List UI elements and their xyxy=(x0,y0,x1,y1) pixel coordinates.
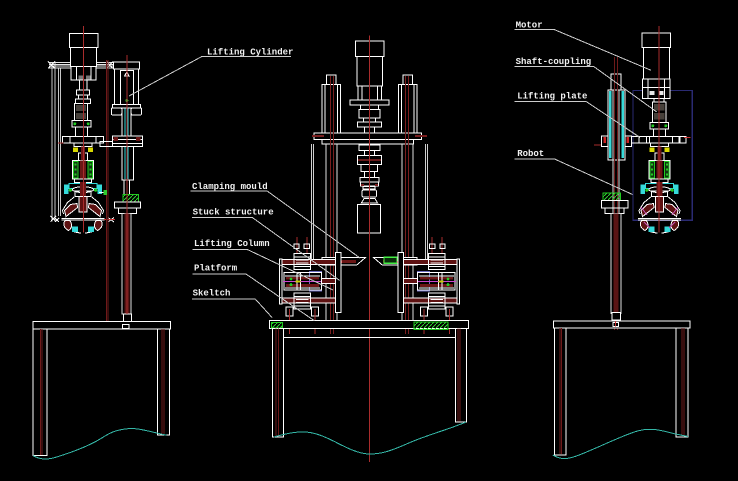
svg-text:Lifting Column: Lifting Column xyxy=(194,239,270,249)
svg-text:Skeltch: Skeltch xyxy=(193,289,231,299)
svg-text:Motor: Motor xyxy=(516,21,543,31)
svg-text:Stuck structure: Stuck structure xyxy=(193,208,274,218)
svg-text:Robot: Robot xyxy=(517,149,544,159)
svg-text:Clamping mould: Clamping mould xyxy=(192,182,268,192)
svg-text:Platform: Platform xyxy=(194,264,238,274)
svg-text:Lifting plate: Lifting plate xyxy=(517,92,587,102)
svg-text:Shaft-coupling: Shaft-coupling xyxy=(516,57,592,67)
